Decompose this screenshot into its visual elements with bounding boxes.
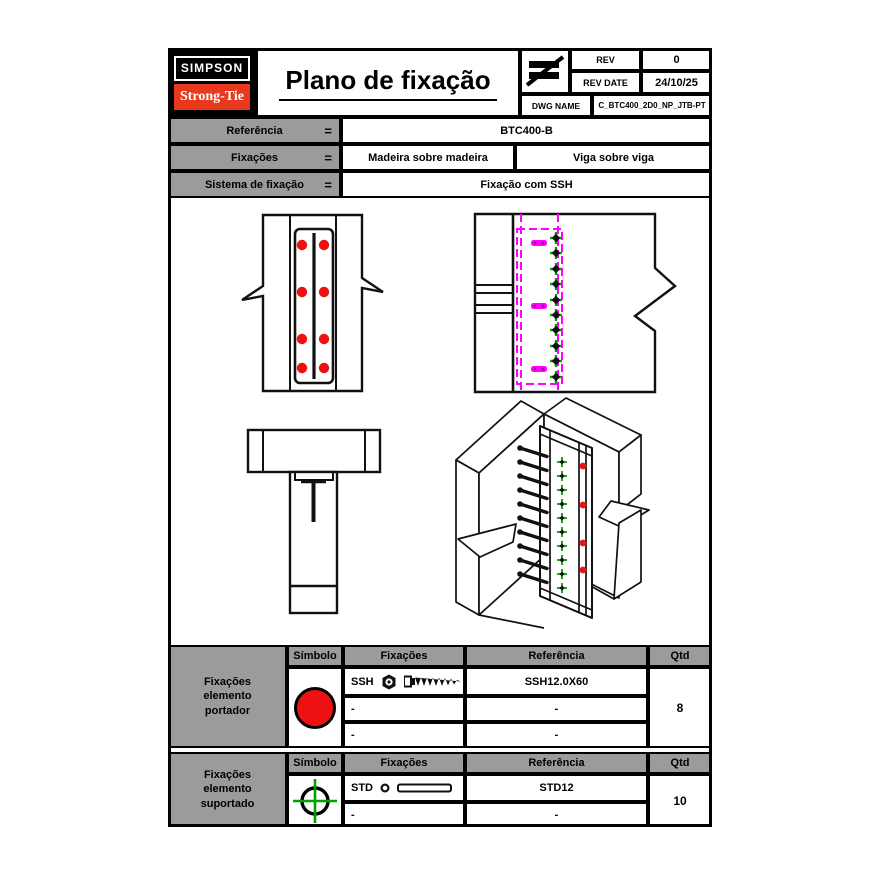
projection-symbol-cell: [520, 48, 570, 94]
dwg-name-value: C_BTC400_2D0_NP_JTB-PT: [592, 94, 712, 117]
portador-header-referencia: Referência: [465, 645, 648, 667]
side-view: [475, 214, 675, 392]
suportado-row2-fixacao: -: [343, 802, 465, 827]
reference-value: BTC400-B: [341, 117, 712, 144]
drawing-area: [168, 198, 712, 645]
reference-row-label: Referência =: [168, 117, 341, 144]
portador-row1-referencia: SSH12.0X60: [465, 667, 648, 696]
fixings-row-label: Fixações =: [168, 144, 341, 171]
ssh-label: SSH: [351, 676, 374, 688]
suportado-group-text: Fixações elemento suportado: [188, 768, 268, 811]
isometric-view: [456, 398, 649, 628]
portador-row1-fixacao: SSH: [343, 667, 465, 696]
logo-strongtie-text: Strong-Tie: [174, 84, 250, 110]
suportado-header-referencia: Referência: [465, 752, 648, 774]
portador-group-label: Fixações elemento portador: [168, 645, 287, 748]
red-filled-circle-icon: [294, 687, 336, 729]
system-value: Fixação com SSH: [341, 171, 712, 198]
equals-sign: =: [324, 177, 332, 192]
portador-header-fixacoes: Fixações: [343, 645, 465, 667]
suportado-row1-referencia: STD12: [465, 774, 648, 802]
fixings-value-1: Madeira sobre madeira: [341, 144, 515, 171]
portador-row3-referencia: -: [465, 722, 648, 748]
portador-header-simbolo: Símbolo: [287, 645, 343, 667]
logo-simpson-text: SIMPSON: [174, 56, 250, 81]
suportado-header-simbolo: Símbolo: [287, 752, 343, 774]
suportado-header-qtd: Qtd: [648, 752, 712, 774]
washer-icon: [380, 783, 390, 793]
sheet-title-text: Plano de fixação: [279, 65, 496, 101]
suportado-group-label: Fixações elemento suportado: [168, 752, 287, 827]
fixings-label-text: Fixações: [231, 152, 278, 164]
portador-row2-referencia: -: [465, 696, 648, 722]
portador-group-text: Fixações elemento portador: [188, 675, 268, 718]
portador-header-qtd: Qtd: [648, 645, 712, 667]
suportado-row1-fixacao: STD: [343, 774, 465, 802]
drawing-sheet: SIMPSON Strong-Tie Plano de fixação REV …: [168, 48, 712, 827]
hex-nut-icon: [381, 674, 397, 690]
rev-date-label: REV DATE: [570, 71, 641, 94]
portador-qty: 8: [648, 667, 712, 748]
reference-label-text: Referência: [226, 125, 282, 137]
dowel-icon: [397, 783, 453, 793]
suportado-qty: 10: [648, 774, 712, 827]
portador-row3-fixacao: -: [343, 722, 465, 748]
rev-date-value: 24/10/25: [641, 71, 712, 94]
std-label: STD: [351, 782, 373, 794]
rev-value: 0: [641, 48, 712, 71]
portador-row2-fixacao: -: [343, 696, 465, 722]
green-crosshair-circle-icon: [291, 777, 339, 825]
first-angle-projection-icon: [524, 55, 566, 87]
portador-symbol-cell: [287, 667, 343, 748]
fixings-value-2: Viga sobre viga: [515, 144, 712, 171]
plan-view: [248, 430, 380, 613]
wood-screw-icon: [404, 674, 462, 689]
suportado-header-fixacoes: Fixações: [343, 752, 465, 774]
page: { "header": { "logo_top": "SIMPSON", "lo…: [0, 0, 880, 880]
system-label-text: Sistema de fixação: [205, 179, 304, 191]
suportado-symbol-cell: [287, 774, 343, 827]
suportado-row2-referencia: -: [465, 802, 648, 827]
system-row-label: Sistema de fixação =: [168, 171, 341, 198]
equals-sign: =: [324, 123, 332, 138]
front-view: [242, 215, 383, 391]
sheet-title: Plano de fixação: [256, 48, 520, 117]
simpson-strongtie-logo: SIMPSON Strong-Tie: [168, 48, 256, 117]
dwg-name-label: DWG NAME: [520, 94, 592, 117]
technical-drawings: [168, 198, 712, 645]
equals-sign: =: [324, 150, 332, 165]
rev-label: REV: [570, 48, 641, 71]
